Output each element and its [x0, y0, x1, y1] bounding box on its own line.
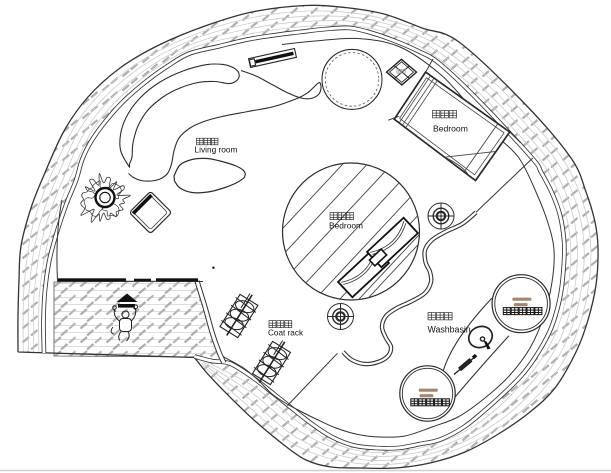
svg-text:Coat rack: Coat rack: [268, 329, 304, 338]
svg-text:Living room: Living room: [195, 145, 238, 155]
svg-text:Bedroom: Bedroom: [329, 221, 363, 231]
svg-text:Washbasin: Washbasin: [428, 325, 471, 335]
svg-text:Bedroom: Bedroom: [433, 124, 468, 134]
